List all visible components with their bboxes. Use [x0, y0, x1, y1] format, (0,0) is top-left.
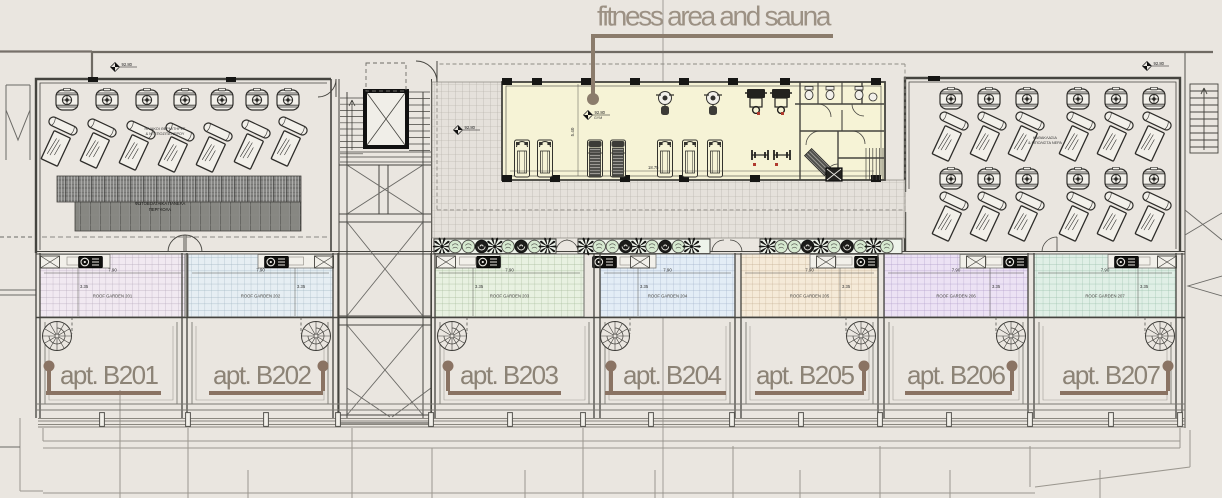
svg-text:ΠΕΡΓΚΟΛΑ: ΠΕΡΓΚΟΛΑ — [149, 207, 172, 212]
svg-text:& ΜΠΟΛΙΣΤΑ ΝΕΡΑ: & ΜΠΟΛΙΣΤΑ ΝΕΡΑ — [1028, 141, 1062, 145]
svg-text:fitness area and sauna: fitness area and sauna — [597, 1, 833, 32]
svg-text:ΚΑΘΑΚΛΑΣΙΑ: ΚΑΘΑΚΛΑΣΙΑ — [1033, 136, 1057, 140]
svg-text:3.35: 3.35 — [992, 284, 1001, 289]
svg-text:ROOF GARDEN 203: ROOF GARDEN 203 — [490, 294, 530, 299]
svg-text:5.40: 5.40 — [570, 127, 575, 136]
svg-text:7.90: 7.90 — [663, 268, 672, 273]
svg-text:7.90: 7.90 — [1101, 268, 1110, 273]
svg-text:ΦΩΤΟΒΟΛΤΑΙΚΑ ΠΑΝΕΛΑ: ΦΩΤΟΒΟΛΤΑΙΚΑ ΠΑΝΕΛΑ — [135, 201, 186, 206]
svg-text:ROOF GARDEN 206: ROOF GARDEN 206 — [936, 294, 976, 299]
svg-text:apt. B206: apt. B206 — [907, 360, 1007, 390]
svg-text:GYM: GYM — [594, 116, 602, 120]
svg-text:ROOF GARDEN 202: ROOF GARDEN 202 — [241, 294, 281, 299]
svg-text:3.35: 3.35 — [640, 284, 649, 289]
svg-text:18.75: 18.75 — [648, 165, 659, 170]
svg-text:3.35: 3.35 — [842, 284, 851, 289]
svg-text:apt. B201: apt. B201 — [60, 360, 160, 390]
svg-text:apt. B207: apt. B207 — [1062, 360, 1162, 390]
svg-text:3.35: 3.35 — [475, 284, 484, 289]
svg-text:7.90: 7.90 — [505, 268, 514, 273]
svg-text:ROOF GARDEN 207: ROOF GARDEN 207 — [1085, 294, 1125, 299]
svg-text:apt. B203: apt. B203 — [460, 360, 560, 390]
svg-text:ROOF GARDEN 204: ROOF GARDEN 204 — [648, 294, 688, 299]
svg-text:& ΝΤΕΠΟΖΙΤΑ ΝΕΡΟΥ: & ΝΤΕΠΟΖΙΤΑ ΝΕΡΟΥ — [146, 132, 185, 136]
svg-text:7.90: 7.90 — [108, 268, 117, 273]
svg-text:ROOF GARDEN 201: ROOF GARDEN 201 — [93, 294, 133, 299]
svg-text:apt. B202: apt. B202 — [213, 360, 313, 390]
svg-text:ROOF GARDEN 205: ROOF GARDEN 205 — [790, 294, 830, 299]
svg-text:3.35: 3.35 — [1140, 284, 1149, 289]
svg-text:7.90: 7.90 — [256, 268, 265, 273]
svg-text:3.35: 3.35 — [80, 284, 89, 289]
svg-text:apt. B204: apt. B204 — [623, 360, 723, 390]
svg-text:3.35: 3.35 — [297, 284, 306, 289]
svg-text:apt. B205: apt. B205 — [756, 360, 856, 390]
svg-text:7.90: 7.90 — [952, 268, 961, 273]
svg-text:ΗΛΙΑΚΟΙ ΘΕΡΜ/ΤΗΡΕΣ: ΗΛΙΑΚΟΙ ΘΕΡΜ/ΤΗΡΕΣ — [144, 127, 186, 131]
svg-text:7.90: 7.90 — [805, 268, 814, 273]
